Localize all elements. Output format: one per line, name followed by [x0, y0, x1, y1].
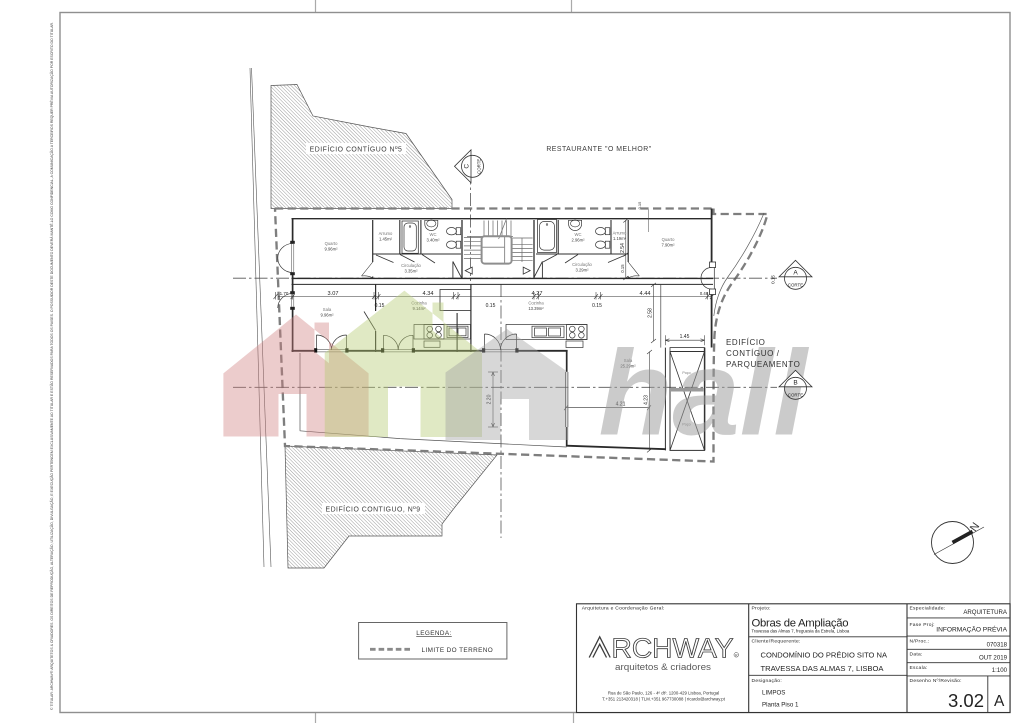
svg-text:9.96m²: 9.96m² — [320, 313, 334, 318]
svg-text:Especialidade:: Especialidade: — [910, 606, 946, 612]
svg-text:3.40m²: 3.40m² — [426, 238, 440, 243]
svg-text:OUT 2019: OUT 2019 — [979, 655, 1008, 662]
svg-text:Arquitetura e Coordenação Gera: Arquitetura e Coordenação Geral: — [582, 606, 665, 612]
svg-text:INFORMAÇÃO PRÉVIA: INFORMAÇÃO PRÉVIA — [936, 624, 1007, 633]
svg-text:Rua de São Paulo, 126 - 4º dtº: Rua de São Paulo, 126 - 4º dtº. 1200-429… — [608, 691, 719, 696]
svg-text:A: A — [994, 693, 1005, 710]
svg-text:Circulação: Circulação — [572, 262, 592, 267]
svg-text:3.29m²: 3.29m² — [575, 268, 589, 273]
svg-text:0.15: 0.15 — [592, 303, 602, 309]
svg-text:Projeto:: Projeto: — [752, 606, 771, 612]
svg-text:Obras de Ampliação: Obras de Ampliação — [752, 617, 849, 629]
svg-text:Travessa das Almas 7, freguesi: Travessa das Almas 7, freguesia da Estre… — [752, 629, 850, 634]
svg-text:7.90m²: 7.90m² — [661, 243, 675, 248]
svg-text:A: A — [793, 270, 798, 277]
svg-text:EDIFÍCIO CONTÍGUO Nº5: EDIFÍCIO CONTÍGUO Nº5 — [310, 145, 403, 154]
svg-text:LIMPOS: LIMPOS — [762, 690, 785, 697]
svg-text:2.96m²: 2.96m² — [571, 238, 585, 243]
svg-text:Planta Piso 1: Planta Piso 1 — [762, 702, 799, 709]
svg-text:T.+351 213420318 | TLM.+351 96: T.+351 213420318 | TLM.+351 967730088 | … — [602, 696, 726, 701]
svg-text:RESTAURANTE "O MELHOR": RESTAURANTE "O MELHOR" — [546, 146, 651, 153]
svg-text:LIMITE DO TERRENO: LIMITE DO TERRENO — [422, 647, 494, 654]
svg-text:0.15: 0.15 — [637, 201, 642, 210]
svg-text:3.35m²: 3.35m² — [404, 269, 418, 274]
svg-text:1.19m²: 1.19m² — [613, 236, 627, 241]
svg-text:N/Proc.:: N/Proc.: — [910, 638, 930, 644]
svg-text:0.46: 0.46 — [700, 291, 709, 296]
svg-text:Cliente/Requerente:: Cliente/Requerente: — [752, 639, 801, 645]
svg-text:CONTÍGUO /: CONTÍGUO / — [726, 349, 780, 358]
svg-text:CORTE: CORTE — [477, 159, 482, 174]
svg-text:1:100: 1:100 — [992, 667, 1008, 674]
svg-text:WC: WC — [575, 232, 582, 237]
svg-text:Fase Proj:: Fase Proj: — [910, 622, 935, 628]
svg-text:CORTE: CORTE — [788, 393, 803, 398]
svg-text:EDIFÍCIO: EDIFÍCIO — [726, 338, 765, 347]
svg-text:LEGENDA:: LEGENDA: — [416, 630, 452, 637]
svg-text:2.58: 2.58 — [648, 308, 654, 318]
svg-text:Cozinha: Cozinha — [528, 301, 544, 306]
svg-text:© TITULAR: ARCHWAY® ARQUITETOS: © TITULAR: ARCHWAY® ARQUITETOS & CRIADOR… — [49, 22, 54, 710]
svg-text:4.44: 4.44 — [640, 291, 651, 297]
svg-text:C: C — [464, 164, 471, 169]
svg-text:0.15: 0.15 — [486, 303, 496, 309]
svg-text:CORTE: CORTE — [788, 283, 803, 288]
svg-text:070318: 070318 — [987, 641, 1008, 648]
svg-text:Sala: Sala — [323, 307, 332, 312]
svg-text:Arrumo: Arrumo — [379, 231, 393, 236]
svg-text:1.70: 1.70 — [280, 291, 289, 296]
svg-text:CONDOMÍNIO DO PRÉDIO SITO NA: CONDOMÍNIO DO PRÉDIO SITO NA — [761, 651, 888, 660]
svg-text:0.15: 0.15 — [771, 275, 776, 284]
svg-text:4.27: 4.27 — [532, 291, 543, 297]
svg-text:Designação:: Designação: — [752, 678, 783, 684]
svg-text:B: B — [793, 380, 797, 387]
svg-text:0.15: 0.15 — [620, 264, 625, 273]
svg-text:Escala:: Escala: — [910, 665, 928, 671]
svg-text:3.07: 3.07 — [328, 291, 339, 297]
svg-text:EDIFÍCIO CONTIGUO, Nº9: EDIFÍCIO CONTIGUO, Nº9 — [325, 505, 420, 514]
svg-text:ARQUITETURA: ARQUITETURA — [963, 609, 1008, 616]
svg-text:1.45m²: 1.45m² — [379, 237, 393, 242]
svg-text:TRAVESSA DAS ALMAS 7, LISBOA: TRAVESSA DAS ALMAS 7, LISBOA — [761, 664, 884, 673]
svg-text:3.02: 3.02 — [948, 690, 984, 711]
svg-text:Desenho Nº/Revisão:: Desenho Nº/Revisão: — [910, 678, 962, 684]
svg-text:PARQUEAMENTO: PARQUEAMENTO — [726, 360, 800, 369]
svg-text:4.34: 4.34 — [423, 291, 434, 297]
svg-text:9.96m²: 9.96m² — [324, 247, 338, 252]
svg-text:13.39m²: 13.39m² — [528, 306, 544, 311]
svg-text:Arrumo: Arrumo — [613, 231, 627, 236]
svg-text:WC: WC — [430, 232, 437, 237]
svg-text:Quarto: Quarto — [325, 241, 338, 246]
svg-text:Circulação: Circulação — [401, 263, 421, 268]
svg-text:RCHWAY: RCHWAY — [612, 632, 734, 663]
svg-text:Data:: Data: — [910, 652, 923, 658]
svg-text:Quarto: Quarto — [662, 237, 675, 242]
svg-text:2.54: 2.54 — [620, 243, 626, 253]
svg-text:arquitetos & criadores: arquitetos & criadores — [615, 662, 712, 672]
svg-text:hall: hall — [599, 325, 810, 461]
